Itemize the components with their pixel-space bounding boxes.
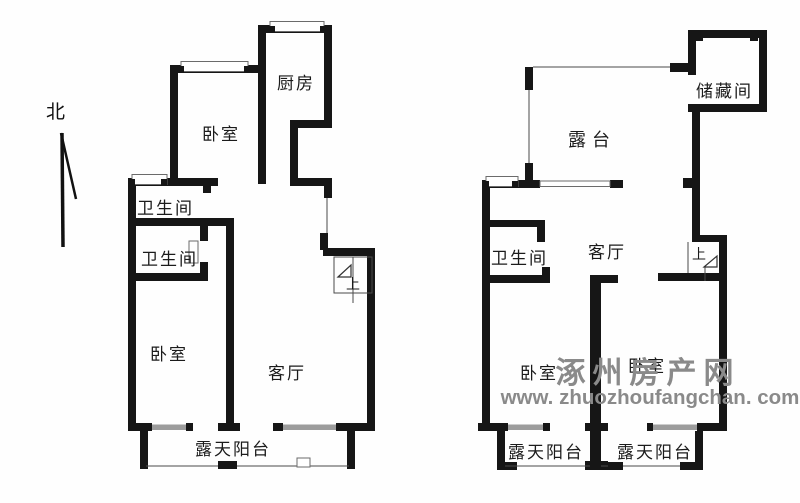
room-label-bedroom-north: 卧室: [202, 125, 240, 144]
balcony-window: [653, 425, 697, 431]
wall: [517, 180, 540, 188]
window-cap: [129, 179, 135, 185]
room-label-balcony-left: 露天阳台: [508, 443, 584, 462]
north-arrow: 北: [46, 101, 76, 247]
wall: [537, 220, 545, 242]
wall: [543, 423, 550, 431]
wall: [324, 186, 332, 198]
north-label: 北: [46, 101, 65, 123]
wall: [608, 462, 623, 470]
wall: [258, 25, 266, 184]
wall: [590, 431, 601, 465]
window: [270, 22, 324, 32]
wall: [128, 178, 136, 430]
room-label-living: 客厅: [588, 243, 626, 262]
wall: [290, 120, 332, 128]
north-arrow-shaft: [62, 133, 63, 247]
wall: [170, 65, 178, 186]
floorplan-image: 北: [0, 0, 800, 503]
wall: [290, 178, 332, 186]
wall: [692, 235, 727, 242]
room-label-bathroom-1: 卫生间: [137, 199, 194, 218]
window-cap: [244, 66, 251, 73]
room-label-storage: 储藏间: [696, 82, 753, 101]
wall: [320, 233, 328, 250]
wall: [347, 430, 355, 469]
window-cap: [161, 179, 167, 185]
wall: [585, 423, 608, 431]
balcony-window: [152, 425, 186, 431]
room-label-living: 客厅: [268, 364, 306, 383]
wall: [680, 462, 703, 470]
window-cap: [750, 35, 758, 41]
wall: [647, 423, 653, 431]
window-cap: [695, 35, 703, 41]
wall: [324, 25, 332, 127]
room-label-bathroom: 卫生间: [491, 249, 548, 268]
wall: [128, 273, 208, 281]
watermark-url: www. zhuozhoufangchan. com: [500, 386, 800, 409]
wall: [482, 180, 490, 430]
stairs-up-label: 上: [346, 276, 360, 292]
wall: [128, 423, 152, 431]
wall: [367, 248, 375, 430]
wall: [759, 30, 767, 112]
left-plan-stairs: 上: [334, 257, 372, 303]
wall: [218, 423, 240, 431]
room-label-bathroom-2: 卫生间: [141, 250, 198, 269]
window-cap: [483, 181, 489, 187]
stairs-up-label: 上: [692, 246, 706, 262]
wall: [697, 423, 727, 431]
wall: [218, 461, 237, 469]
wall: [610, 180, 623, 188]
wall: [692, 112, 700, 242]
floorplan-svg: 北: [0, 0, 800, 503]
room-label-balcony-right: 露天阳台: [617, 443, 693, 462]
wall: [226, 218, 234, 427]
wall: [186, 423, 193, 431]
wall: [290, 127, 298, 184]
wall: [542, 267, 550, 283]
balcony-window: [508, 425, 543, 431]
window-cap: [177, 66, 184, 73]
wall: [273, 423, 283, 431]
wall: [203, 184, 211, 193]
wall: [658, 273, 727, 281]
left-plan-walls: [128, 25, 375, 469]
room-label-balcony: 露天阳台: [195, 440, 271, 459]
wall: [336, 423, 375, 431]
wall: [683, 178, 692, 188]
room-label-kitchen: 厨房: [277, 74, 315, 93]
wall: [688, 104, 767, 112]
balcony-window: [283, 425, 336, 431]
room-label-terrace: 露台: [568, 130, 616, 150]
wall: [482, 275, 550, 283]
window-cap: [320, 26, 327, 33]
room-label-bedroom-south: 卧室: [150, 345, 188, 364]
wall: [140, 430, 148, 469]
wall: [670, 63, 688, 72]
wall: [525, 67, 533, 90]
balcony-door-marker: [297, 458, 310, 467]
wall: [128, 218, 234, 226]
wall: [487, 220, 545, 227]
wall: [478, 423, 508, 431]
window-cap: [512, 181, 518, 187]
wall: [200, 218, 208, 241]
window: [181, 62, 248, 72]
window-cap: [268, 26, 275, 33]
room-label-bedroom-left: 卧室: [520, 364, 558, 383]
window: [540, 181, 610, 187]
